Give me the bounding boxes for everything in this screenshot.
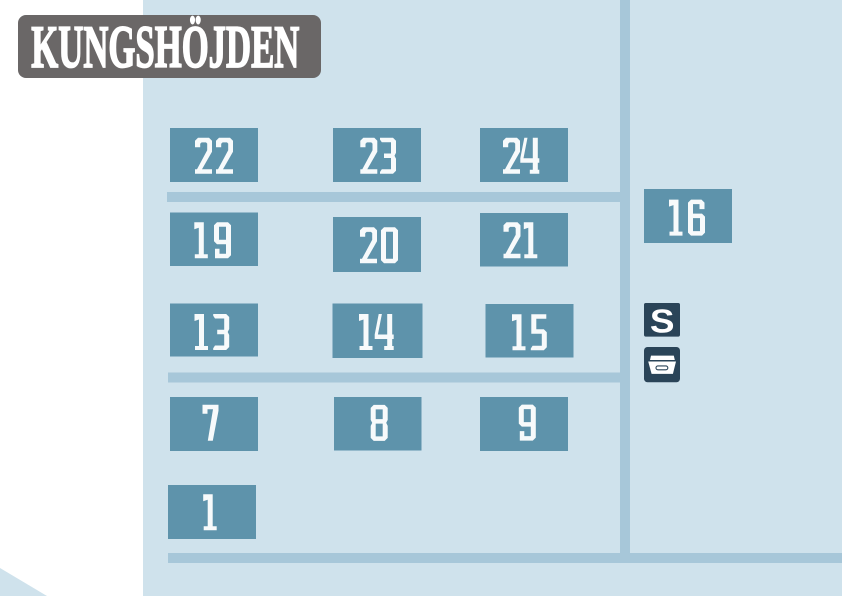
svg-text:S: S — [650, 303, 675, 340]
svg-text:KUNGSHÖJDEN: KUNGSHÖJDEN — [31, 14, 299, 80]
